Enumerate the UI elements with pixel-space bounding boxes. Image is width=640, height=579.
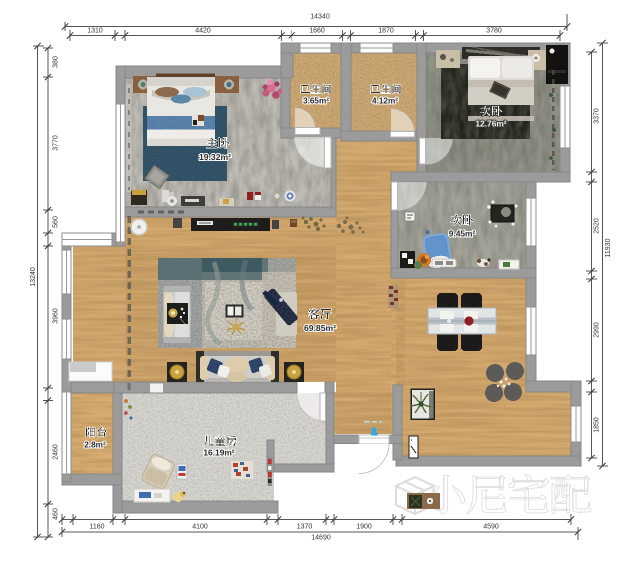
svg-text:1870: 1870 xyxy=(378,27,394,34)
svg-text:4100: 4100 xyxy=(192,523,208,530)
svg-text:1310: 1310 xyxy=(87,27,103,34)
svg-text:2460: 2460 xyxy=(52,444,59,460)
svg-text:16.19m²: 16.19m² xyxy=(203,448,234,458)
svg-text:3370: 3370 xyxy=(593,108,600,124)
svg-text:1370: 1370 xyxy=(297,523,313,530)
svg-text:4420: 4420 xyxy=(195,27,211,34)
svg-text:1900: 1900 xyxy=(356,523,372,530)
svg-text:9.45m²: 9.45m² xyxy=(449,229,476,239)
svg-text:560: 560 xyxy=(52,216,59,228)
svg-text:2990: 2990 xyxy=(593,322,600,338)
svg-text:3.65m²: 3.65m² xyxy=(303,97,329,106)
svg-text:11930: 11930 xyxy=(605,238,612,257)
svg-text:14690: 14690 xyxy=(311,534,331,541)
svg-text:12.76m²: 12.76m² xyxy=(475,119,506,129)
svg-text:460: 460 xyxy=(52,508,59,520)
svg-text:1160: 1160 xyxy=(89,523,104,530)
svg-text:13240: 13240 xyxy=(30,267,37,287)
svg-text:69.85m²: 69.85m² xyxy=(304,323,336,333)
svg-text:4590: 4590 xyxy=(483,523,499,530)
svg-text:19.32m²: 19.32m² xyxy=(199,152,231,162)
svg-text:3780: 3780 xyxy=(486,27,502,34)
svg-text:3960: 3960 xyxy=(52,308,59,324)
svg-text:2520: 2520 xyxy=(593,218,600,234)
svg-text:2.8m²: 2.8m² xyxy=(84,441,106,450)
svg-text:4.12m²: 4.12m² xyxy=(372,97,398,106)
svg-text:380: 380 xyxy=(52,56,59,68)
svg-text:1850: 1850 xyxy=(593,417,600,433)
svg-text:1660: 1660 xyxy=(309,27,325,34)
svg-text:3770: 3770 xyxy=(52,135,59,151)
svg-text:14340: 14340 xyxy=(310,13,330,20)
